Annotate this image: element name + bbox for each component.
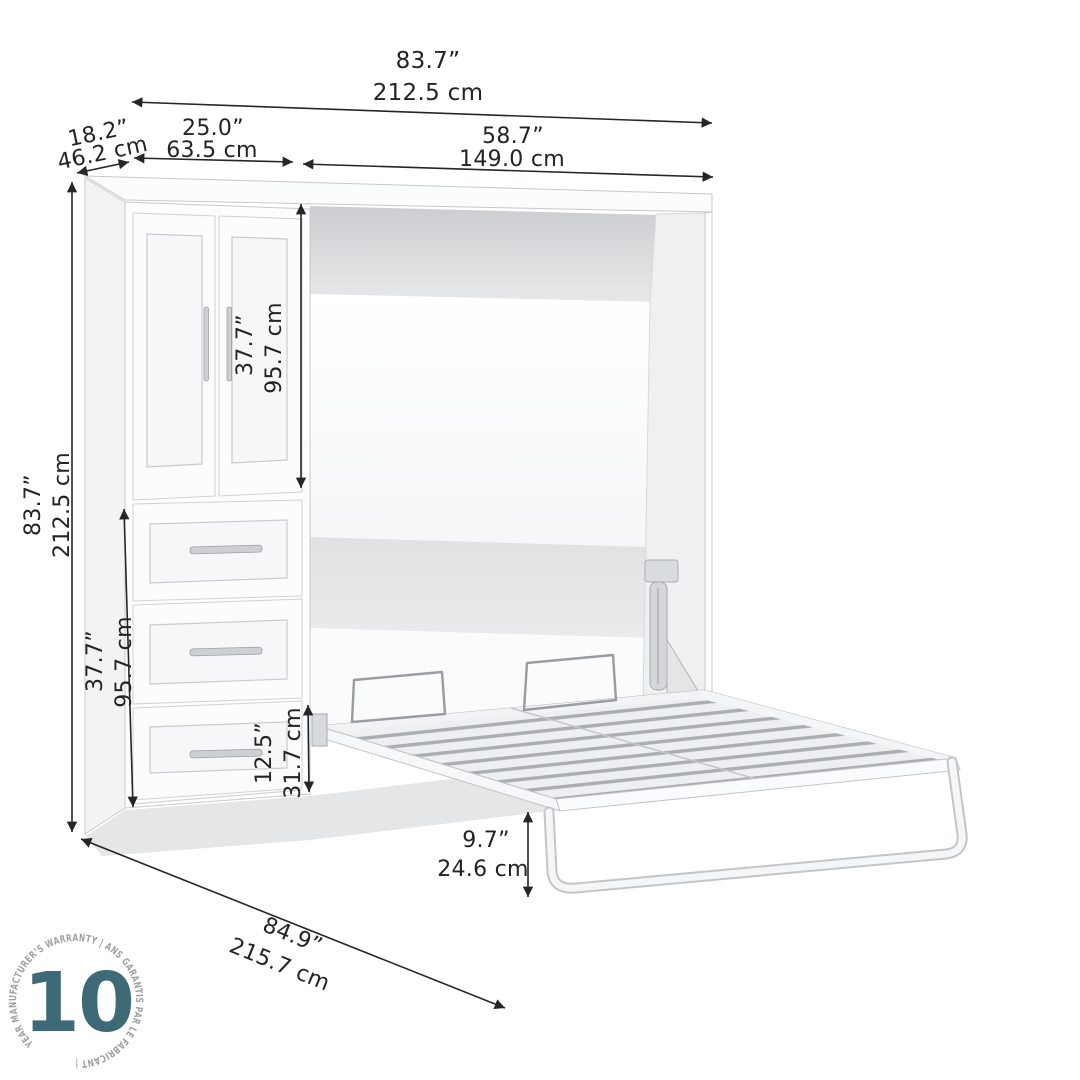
dim-overall-height-in: 83.7” [21,474,46,536]
dim-bed-width-cm: 149.0 cm [459,147,565,172]
dim-drawer-stack-height-in: 37.7” [83,630,108,692]
door-left-inset-panel [147,234,202,467]
interior-lower-panel [310,537,648,638]
dim-door-height-cm: 95.7 cm [262,302,287,394]
dim-storage-width-cm: 63.5 cm [166,138,258,163]
cabinet-left-side-panel [85,178,125,834]
piston-top-bracket [645,560,678,582]
door-right-handle [227,307,232,381]
interior-back-wall [310,294,650,547]
warranty-years: 10 [23,956,133,1051]
dim-bottom-drawer-height-cm: 31.7 cm [281,707,306,799]
dim-bottom-drawer-height-in: 12.5” [252,722,277,784]
dim-overall-height-cm: 212.5 cm [50,452,75,558]
dim-drawer-stack-height-cm: 95.7 cm [112,616,137,708]
dim-bed-frame-height-in: 9.7” [462,828,510,853]
drawer-2-handle [190,647,262,656]
dim-arrow-bottom-drawer-height [308,705,309,792]
dim-overall-width-cm: 212.5 cm [373,80,484,106]
dim-overall-width-in: 83.7” [396,48,461,74]
dim-door-height-in: 37.7” [233,314,258,376]
diagram-canvas: 83.7” 212.5 cm 18.2” 46.2 cm 25.0” 63.5 … [0,0,1080,1080]
drawer-1-handle [190,545,262,554]
door-left-handle [204,307,209,381]
deck-hinge-bracket [312,714,327,746]
dim-bed-width-in: 58.7” [482,124,544,149]
interior-soffit-shadow [310,206,660,302]
product-dimension-diagram: 83.7” 212.5 cm 18.2” 46.2 cm 25.0” 63.5 … [0,0,1080,1080]
right-side-panel-front-edge [705,212,712,746]
dim-bed-frame-height-cm: 24.6 cm [437,857,529,882]
